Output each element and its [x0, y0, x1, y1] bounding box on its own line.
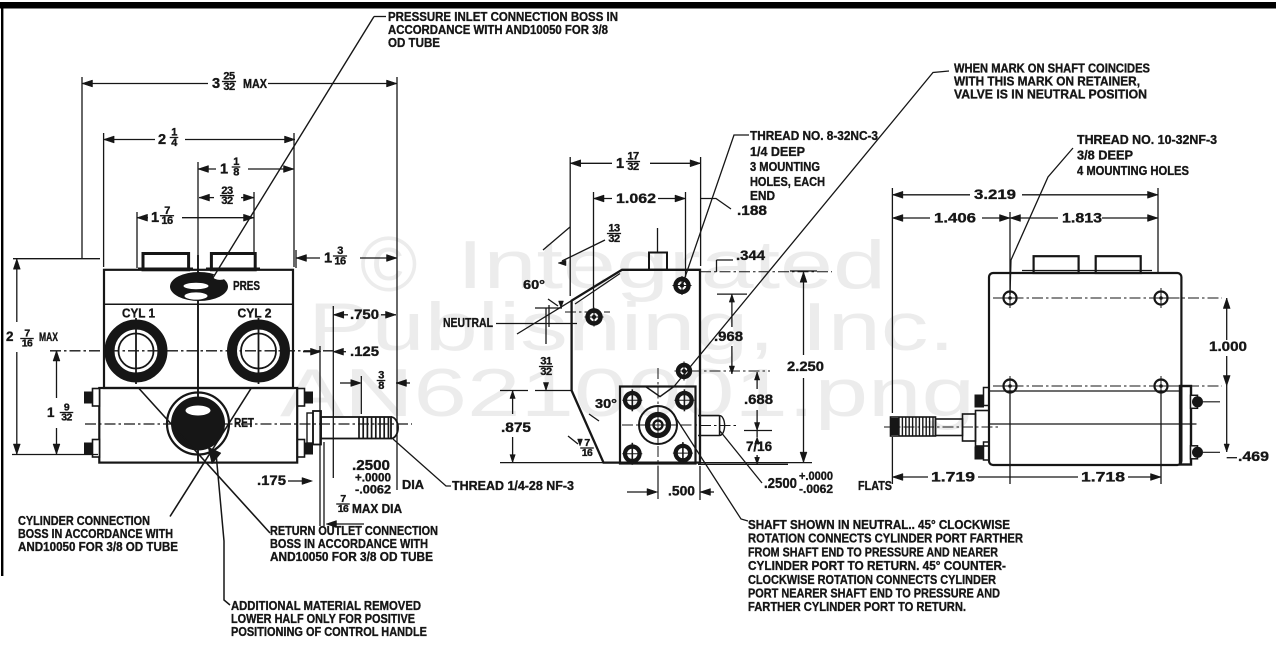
svg-text:1: 1 — [324, 251, 332, 267]
svg-text:1.406: 1.406 — [934, 210, 976, 226]
svg-text:1/4 DEEP: 1/4 DEEP — [750, 144, 805, 159]
svg-text:16: 16 — [334, 255, 346, 267]
svg-text:1: 1 — [220, 162, 228, 178]
svg-text:.688: .688 — [744, 391, 773, 407]
svg-text:THREAD NO. 8-32NC-3: THREAD NO. 8-32NC-3 — [750, 128, 878, 143]
svg-text:.500: .500 — [668, 483, 695, 499]
svg-text:1.718: 1.718 — [1081, 469, 1125, 485]
svg-text:FLATS: FLATS — [858, 478, 892, 493]
svg-text:.188: .188 — [737, 202, 767, 218]
svg-text:POSITIONING OF CONTROL HANDLE: POSITIONING OF CONTROL HANDLE — [231, 624, 427, 639]
svg-text:32: 32 — [540, 366, 552, 378]
svg-text:THREAD NO. 10-32NF-3: THREAD NO. 10-32NF-3 — [1077, 132, 1217, 147]
svg-text:RET: RET — [234, 415, 254, 430]
svg-text:2: 2 — [158, 132, 166, 148]
svg-text:32: 32 — [221, 195, 233, 207]
svg-text:+.0000: +.0000 — [799, 470, 833, 483]
svg-text:THREAD 1/4-28 NF-3: THREAD 1/4-28 NF-3 — [452, 478, 574, 493]
svg-text:16: 16 — [338, 504, 349, 515]
svg-text:VALVE IS IN NEUTRAL POSITION: VALVE IS IN NEUTRAL POSITION — [954, 87, 1147, 102]
svg-text:.875: .875 — [501, 419, 531, 435]
svg-text:1.719: 1.719 — [931, 469, 975, 485]
svg-text:MAX DIA: MAX DIA — [352, 501, 402, 516]
svg-text:MAX: MAX — [243, 76, 267, 91]
svg-text:-.0062: -.0062 — [355, 484, 391, 497]
svg-text:1: 1 — [47, 405, 55, 420]
svg-text:NEUTRAL: NEUTRAL — [443, 315, 493, 330]
svg-text:CYL 2: CYL 2 — [238, 306, 272, 321]
svg-text:8: 8 — [378, 380, 384, 392]
svg-text:-.0062: -.0062 — [799, 483, 833, 496]
svg-text:OD TUBE: OD TUBE — [388, 35, 440, 50]
svg-text:2: 2 — [6, 329, 13, 344]
svg-text:END: END — [750, 188, 775, 203]
svg-text:16: 16 — [161, 215, 173, 227]
svg-text:7/16: 7/16 — [746, 439, 772, 454]
svg-text:3/8 DEEP: 3/8 DEEP — [1077, 148, 1133, 163]
svg-text:AND10050 FOR 3/8 OD TUBE: AND10050 FOR 3/8 OD TUBE — [270, 549, 433, 564]
svg-text:3.219: 3.219 — [974, 186, 1016, 202]
svg-text:Publishing, Inc.: Publishing, Inc. — [308, 289, 955, 365]
svg-text:1.000: 1.000 — [1209, 338, 1247, 354]
svg-text:.2500: .2500 — [764, 476, 797, 492]
svg-text:4 MOUNTING HOLES: 4 MOUNTING HOLES — [1077, 163, 1189, 178]
svg-text:.125: .125 — [350, 343, 379, 359]
svg-text:1: 1 — [151, 210, 159, 226]
svg-text:DIA: DIA — [402, 477, 424, 492]
svg-text:1.062: 1.062 — [616, 190, 656, 206]
svg-text:16: 16 — [582, 448, 593, 459]
svg-text:16: 16 — [22, 338, 33, 349]
svg-text:32: 32 — [61, 412, 72, 423]
svg-text:HOLES, EACH: HOLES, EACH — [750, 174, 825, 189]
svg-text:1: 1 — [616, 156, 624, 172]
svg-text:AND10050 FOR 3/8 OD TUBE: AND10050 FOR 3/8 OD TUBE — [18, 539, 178, 554]
svg-text:32: 32 — [627, 161, 639, 173]
svg-text:1.813: 1.813 — [1062, 210, 1102, 226]
svg-text:CYL 1: CYL 1 — [122, 306, 155, 321]
svg-text:32: 32 — [223, 81, 235, 93]
svg-text:.750: .750 — [350, 306, 379, 322]
svg-text:.968: .968 — [714, 328, 743, 344]
svg-text:FARTHER CYLINDER PORT TO RETUR: FARTHER CYLINDER PORT TO RETURN. — [748, 599, 966, 614]
svg-text:8: 8 — [233, 166, 239, 178]
svg-text:30°: 30° — [595, 396, 617, 411]
svg-text:MAX: MAX — [39, 331, 58, 344]
svg-text:PRES: PRES — [233, 278, 260, 293]
svg-text:.469: .469 — [1238, 448, 1269, 464]
svg-text:.175: .175 — [257, 472, 286, 488]
svg-text:.344: .344 — [736, 247, 765, 263]
svg-text:3 MOUNTING: 3 MOUNTING — [750, 159, 820, 174]
svg-text:32: 32 — [608, 233, 620, 245]
svg-text:3: 3 — [212, 76, 220, 92]
svg-text:60°: 60° — [523, 277, 545, 292]
svg-text:2.250: 2.250 — [787, 358, 824, 374]
